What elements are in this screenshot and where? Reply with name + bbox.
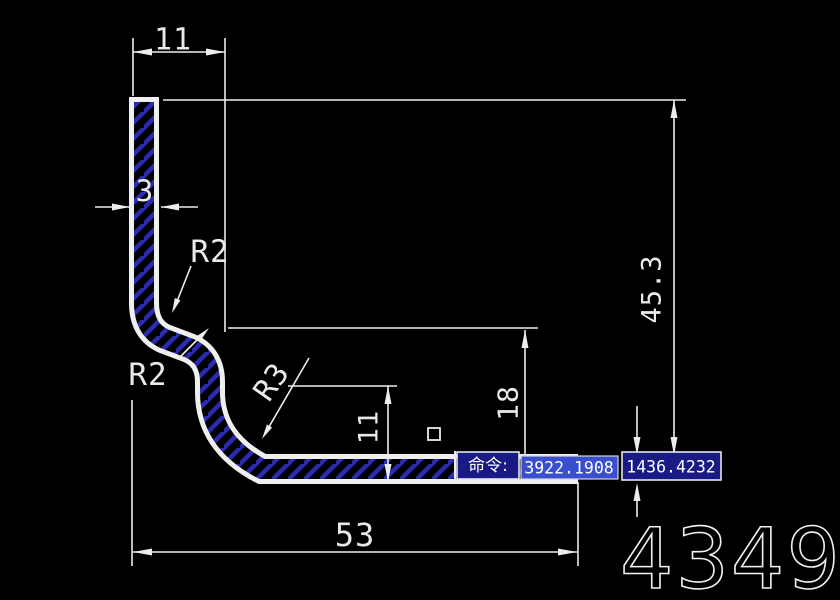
coord-x-value: 3922.1908 (524, 459, 613, 478)
dim-text-total-height: 45.3 (637, 254, 668, 323)
dim-text-flange-height: 11 (354, 410, 385, 445)
dim-text-total-width: 53 (335, 516, 376, 554)
coord-y-value: 1436.4232 (626, 458, 715, 477)
cad-viewport[interactable]: 11 3 R2 R2 R3 11 18 (0, 0, 840, 600)
radius-text-lower: R2 (128, 357, 167, 393)
dim-text-step-height: 18 (492, 385, 525, 421)
command-overlay[interactable]: 命令: 3922.1908 1436.4232 (455, 451, 721, 481)
dim-text-top-width: 11 (154, 23, 192, 58)
drawing-canvas[interactable]: 11 3 R2 R2 R3 11 18 (0, 0, 840, 600)
part-number-text: 4349 (620, 510, 840, 600)
radius-text-upper: R2 (190, 234, 229, 270)
dim-text-wall-thickness: 3 (136, 174, 154, 208)
command-prompt-label: 命令: (468, 456, 508, 476)
